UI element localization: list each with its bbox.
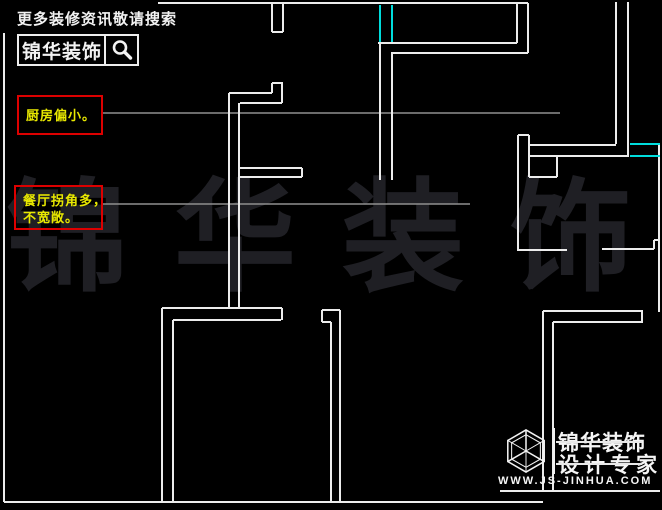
floorplan-image: 锦华装饰 更多装修资讯敬请搜索 锦华装饰 厨房偏小。 餐厅拐角多， 不宽敞。 <box>0 0 662 510</box>
divider <box>553 428 555 474</box>
cube-wireframe-icon <box>502 428 550 479</box>
top-branding: 更多装修资讯敬请搜索 锦华装饰 <box>17 8 177 66</box>
annotation-dining: 餐厅拐角多， 不宽敞。 <box>14 185 103 230</box>
annotation-text: 厨房偏小。 <box>26 107 101 124</box>
annotation-text: 餐厅拐角多， <box>23 192 101 209</box>
magnifier-icon <box>106 36 137 64</box>
logo-strike-line <box>556 441 642 443</box>
brand-name-text: 锦华装饰 <box>19 36 104 64</box>
annotation-text: 不宽敞。 <box>23 209 101 226</box>
logo-strike-line <box>556 463 642 465</box>
bottom-branding: 锦华装饰 设计专家 WWW.JS-JINHUA.COM <box>498 426 662 492</box>
annotation-kitchen: 厨房偏小。 <box>17 95 103 135</box>
search-hint-text: 更多装修资讯敬请搜索 <box>17 8 177 29</box>
brand-website-text: WWW.JS-JINHUA.COM <box>498 475 662 487</box>
brand-search-box: 锦华装饰 <box>17 34 139 66</box>
